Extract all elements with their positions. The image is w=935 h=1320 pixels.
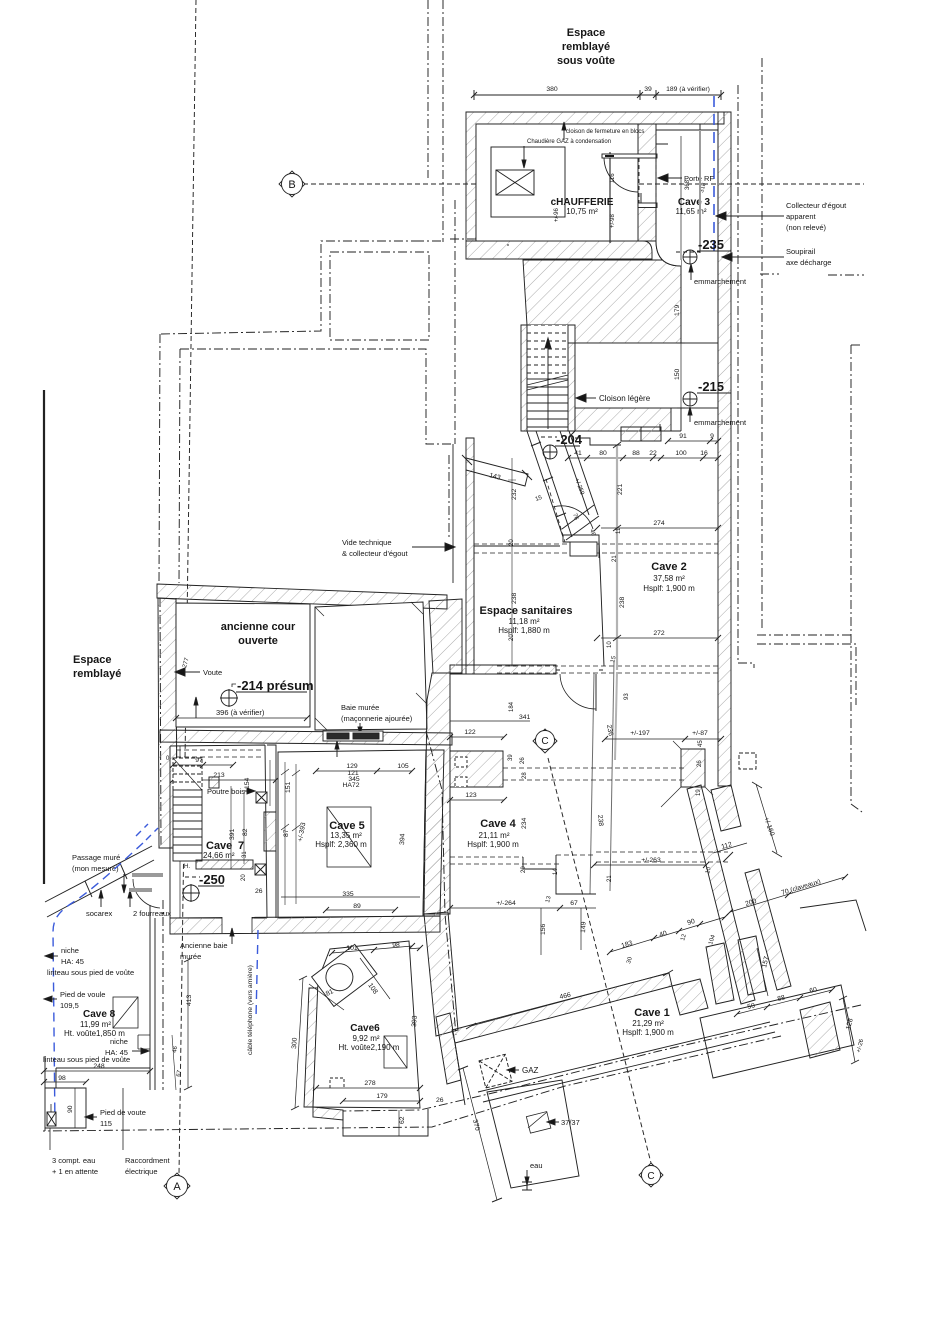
svg-text:Raccordment: Raccordment [125,1156,171,1165]
svg-text:électrique: électrique [125,1167,158,1176]
svg-text:GAZ: GAZ [522,1066,539,1075]
svg-text:11,18 m²: 11,18 m² [509,617,540,626]
svg-text:10: 10 [607,641,613,648]
svg-text:murée: murée [180,952,201,961]
svg-text:234: 234 [521,817,528,829]
svg-text:12: 12 [680,933,688,942]
svg-text:380: 380 [546,86,558,93]
svg-text:Cave6: Cave6 [350,1023,380,1034]
svg-text:37/37: 37/37 [561,1118,580,1127]
svg-text:26: 26 [520,757,526,764]
svg-text:Pied de voule: Pied de voule [60,990,105,999]
svg-text:Espace sanitaires: Espace sanitaires [480,605,573,617]
svg-text:26: 26 [255,888,263,895]
svg-text:335: 335 [342,891,354,898]
svg-text:9: 9 [710,433,714,440]
svg-text:21: 21 [607,875,613,882]
svg-text:150: 150 [674,368,681,380]
svg-text:413: 413 [186,994,193,1006]
svg-text:40: 40 [659,930,668,939]
svg-text:21,11 m²: 21,11 m² [479,831,510,840]
svg-text:(non relevé): (non relevé) [786,223,827,232]
svg-text:(maçonnerie ajourée): (maçonnerie ajourée) [341,714,413,723]
svg-text:H.: H. [184,864,190,870]
svg-text:391: 391 [229,828,236,840]
svg-text:linteau sous pied de voûte: linteau sous pied de voûte [43,1055,130,1064]
svg-text:90: 90 [687,918,696,927]
svg-text:109,5: 109,5 [60,1001,79,1010]
svg-text:+/-98: +/-98 [610,213,616,228]
svg-text:143: 143 [489,472,502,482]
svg-text:238: 238 [619,596,626,608]
svg-text:C: C [541,736,548,747]
svg-text:Hsplf: 1,900 m: Hsplf: 1,900 m [622,1028,674,1037]
svg-text:niche: niche [61,946,79,955]
svg-text:11,65 m²: 11,65 m² [676,207,707,216]
svg-text:76: 76 [571,513,579,522]
svg-text:13,35 m²: 13,35 m² [330,831,362,840]
svg-text:13: 13 [545,895,553,904]
svg-text:31: 31 [242,851,248,858]
svg-text:Cave 4: Cave 4 [480,818,516,830]
svg-text:B: B [288,179,295,191]
svg-text:221: 221 [617,483,624,495]
svg-text:+/-197: +/-197 [630,730,650,737]
svg-text:ouverte: ouverte [238,635,278,647]
svg-text:& collecteur d'égout: & collecteur d'égout [342,549,409,558]
svg-text:Espace: Espace [73,654,112,666]
svg-text:393: 393 [411,1015,419,1027]
svg-text:Hsplf: 1,880 m: Hsplf: 1,880 m [498,626,550,635]
svg-text:+/-26: +/-26 [856,1038,865,1054]
svg-text:151: 151 [285,781,292,793]
svg-text:eau: eau [530,1161,543,1170]
svg-text:88: 88 [632,450,640,457]
svg-text:91: 91 [679,433,687,440]
svg-text:Collecteur d'égout: Collecteur d'égout [786,201,847,210]
svg-text:-235: -235 [698,237,724,252]
svg-text:67: 67 [570,900,578,907]
svg-text:Cave 1: Cave 1 [634,1007,669,1019]
svg-text:Cloison légère: Cloison légère [599,394,651,403]
svg-text:Ht. voûte2,190 m: Ht. voûte2,190 m [339,1043,400,1052]
svg-text:+/-263: +/-263 [641,857,661,864]
svg-text:104: 104 [708,934,717,946]
svg-text:39: 39 [644,86,652,93]
svg-text:linteau sous pied de voûte: linteau sous pied de voûte [47,968,134,977]
svg-text:28: 28 [522,772,528,779]
svg-text:HA: 45: HA: 45 [61,957,84,966]
svg-text:Passage muré: Passage muré [72,853,120,862]
svg-text:30: 30 [626,956,634,965]
svg-text:37,58 m²: 37,58 m² [653,574,685,583]
svg-text:21: 21 [612,555,618,562]
svg-text:(mon mesuré): (mon mesuré) [72,864,119,873]
svg-text:+/-87: +/-87 [692,730,708,737]
svg-text:Hsplf: 1,900 m: Hsplf: 1,900 m [467,840,519,849]
svg-text:-250: -250 [199,872,225,887]
svg-text:10,75 m²: 10,75 m² [566,207,598,216]
svg-text:Hsplf: 1,900 m: Hsplf: 1,900 m [643,584,695,593]
svg-text:22: 22 [649,450,657,457]
svg-text:341: 341 [519,714,531,721]
svg-text:89: 89 [353,903,361,910]
svg-text:26: 26 [436,1097,444,1104]
svg-text:+/-259: +/-259 [573,478,585,497]
svg-text:Chaudière GAZ à condensation: Chaudière GAZ à condensation [527,139,611,145]
svg-text:2 fourreaux: 2 fourreaux [133,909,171,918]
svg-text:62: 62 [399,1116,406,1124]
svg-text:sous voûte: sous voûte [557,55,615,67]
svg-text:16: 16 [700,450,708,457]
svg-text:Poutre bois: Poutre bois [207,787,245,796]
svg-text:-204: -204 [556,432,583,447]
svg-text:45: 45 [698,740,704,747]
svg-text:remblayé: remblayé [73,668,121,680]
svg-text:ancienne cour: ancienne cour [221,621,296,633]
svg-text:274: 274 [653,520,665,527]
svg-text:Cave 8: Cave 8 [83,1009,116,1020]
svg-text:67: 67 [176,1069,183,1077]
svg-text:11: 11 [616,527,622,534]
svg-text:+/-264: +/-264 [496,900,516,907]
svg-text:7: 7 [238,840,244,852]
svg-text:Cave 2: Cave 2 [651,561,686,573]
svg-text:100: 100 [675,450,687,457]
svg-text:remblayé: remblayé [562,41,610,53]
svg-text:24,66 m²: 24,66 m² [203,851,235,860]
svg-text:93: 93 [624,693,630,700]
svg-text:272: 272 [653,630,665,637]
svg-text:emmarchement: emmarchement [694,277,747,286]
svg-text:112: 112 [721,841,734,851]
svg-text:20: 20 [241,874,247,881]
svg-text:236: 236 [605,724,614,737]
svg-text:9,92 m²: 9,92 m² [352,1034,379,1043]
svg-text:90: 90 [67,1105,74,1113]
svg-text:116: 116 [610,173,616,183]
svg-text:238: 238 [596,814,604,826]
svg-text:87: 87 [283,829,290,837]
svg-text:-214 présum: -214 présum [237,678,314,693]
svg-text:97: 97 [195,757,203,764]
svg-text:122: 122 [464,729,476,736]
svg-text:Vide technique: Vide technique [342,538,392,547]
svg-text:-215: -215 [698,379,724,394]
svg-text:11,99 m²: 11,99 m² [80,1020,111,1029]
svg-text:Voute: Voute [203,668,222,677]
svg-text:396 (à vérifier): 396 (à vérifier) [216,708,265,717]
svg-text:Soupirail: Soupirail [786,247,816,256]
svg-text:HA72: HA72 [342,782,359,789]
svg-text:apparent: apparent [786,212,817,221]
svg-text:Espace: Espace [567,27,606,39]
svg-text:370: 370 [471,1119,481,1132]
svg-text:Baie murée: Baie murée [341,703,379,712]
svg-text:axe décharge: axe décharge [786,258,831,267]
svg-text:+/-96: +/-96 [554,207,560,222]
svg-text:189 (à vérifier): 189 (à vérifier) [666,86,710,93]
svg-text:368: 368 [685,179,691,190]
svg-text:128: 128 [845,1018,855,1031]
svg-text:C: C [647,1171,654,1182]
svg-text:câble téléphone (vers amière): câble téléphone (vers amière) [247,965,254,1055]
svg-text:3 compt. eau: 3 compt. eau [52,1156,95,1165]
svg-text:394: 394 [399,833,407,845]
svg-text:14: 14 [553,868,559,875]
svg-text:278: 278 [364,1080,376,1087]
svg-text:niche: niche [110,1037,128,1046]
svg-text:39: 39 [508,754,514,761]
svg-text:Hsplf: 2,360 m: Hsplf: 2,360 m [315,840,367,849]
svg-text:+ 1 en attente: + 1 en attente [52,1167,98,1176]
svg-text:21,29 m²: 21,29 m² [632,1019,664,1028]
svg-text:123: 123 [465,792,477,799]
svg-text:emmarchement: emmarchement [694,418,747,427]
svg-text:248: 248 [93,1063,105,1070]
svg-text:26: 26 [697,760,703,767]
svg-text:184: 184 [509,701,515,712]
svg-text:179: 179 [376,1093,388,1100]
svg-text:105: 105 [397,763,409,770]
svg-text:80: 80 [599,450,607,457]
svg-text:socarex: socarex [86,909,113,918]
svg-text:98: 98 [392,942,400,949]
svg-text:15: 15 [535,495,544,503]
svg-text:70 (claveaux): 70 (claveaux) [781,878,822,897]
svg-text:82: 82 [242,828,249,836]
svg-text:cloison de fermeture en blocs: cloison de fermeture en blocs [566,129,644,135]
svg-text:157: 157 [761,956,771,969]
svg-text:300: 300 [291,1037,299,1049]
svg-text:Ancienne baie: Ancienne baie [180,941,228,950]
svg-text:129: 129 [346,763,358,770]
svg-text:183: 183 [621,940,634,950]
svg-text:154: 154 [244,777,251,789]
svg-text:115: 115 [100,1119,112,1128]
svg-text:98: 98 [58,1075,66,1082]
svg-text:101: 101 [346,945,358,952]
svg-text:A: A [173,1181,181,1193]
